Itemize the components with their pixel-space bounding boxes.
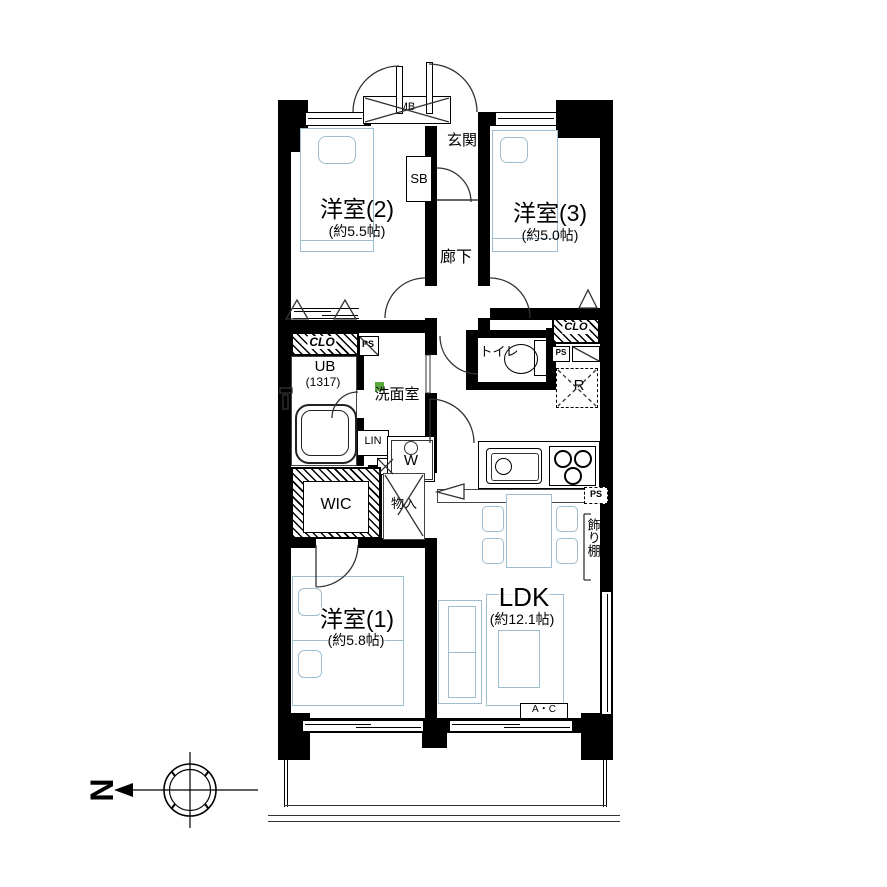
aircon-label: A・C: [532, 705, 556, 716]
stove-burner-2: [574, 450, 592, 468]
window-ldk-balcony: [450, 720, 572, 732]
compass-icon: [114, 752, 258, 828]
entrance-inner-door-arc: [437, 168, 471, 202]
pillow-room3: [500, 137, 528, 163]
wall-below-wic-a: [291, 538, 316, 548]
pipe-space-right-label: PS: [556, 349, 567, 357]
ldk-size: (約12.1帖): [490, 612, 555, 627]
hallway-label: 廊下: [440, 250, 472, 267]
entrance-door-leaf: [426, 62, 433, 114]
room2-door-arc: [385, 278, 425, 318]
wall-toilet-top: [466, 330, 556, 338]
window-room1-balcony: [303, 720, 423, 732]
pillow-room1-a: [298, 588, 322, 616]
room3-name: 洋室(3): [513, 201, 587, 225]
balcony-floor-edge: [284, 805, 607, 809]
compass-north-label: N: [84, 772, 120, 808]
sink-drain: [495, 458, 512, 475]
wall-corridor-right: [478, 126, 490, 286]
stove-burner-1: [554, 450, 572, 468]
wall-corner-bottom-right: [581, 713, 613, 760]
linen-label: LIN: [364, 436, 381, 448]
closet-right-label: CLO: [562, 322, 589, 334]
dining-chair-3: [556, 506, 578, 532]
toilet-bowl: [504, 344, 538, 374]
pillow-room1-b: [298, 650, 322, 678]
bathtub-inner: [301, 410, 349, 456]
window-ldk-right: [601, 592, 612, 714]
shelf-label: 飾り棚: [586, 518, 600, 557]
dining-table: [506, 494, 552, 568]
closet-left-label: CLO: [307, 336, 336, 349]
wall-left: [278, 100, 291, 758]
wall-pier-bottom-middle: [422, 718, 447, 748]
shoe-box-label: SB: [410, 172, 427, 186]
wall-bath-right-a: [356, 352, 364, 390]
entrance-label: 玄関: [447, 133, 477, 149]
wall-corridor-left: [425, 126, 437, 286]
pillow-room2: [318, 136, 356, 164]
closet-sliding-door-room2: [293, 308, 359, 319]
washer-label: W: [404, 453, 418, 469]
wic-label: WIC: [320, 497, 351, 514]
room2-name: 洋室(2): [320, 197, 394, 221]
wall-toilet-left: [466, 330, 478, 390]
wall-washroom-right-a: [425, 333, 437, 355]
dining-chair-1: [482, 506, 504, 532]
pipe-space-kitchen-label: PS: [590, 490, 602, 499]
wall-corner-top-right: [556, 100, 613, 138]
room1-name: 洋室(1): [320, 607, 394, 631]
plan-line-overlay: [0, 0, 887, 887]
dining-chair-2: [482, 538, 504, 564]
stove-burner-3: [564, 467, 582, 485]
washroom-door-leaf: [426, 355, 430, 393]
unit-bath-label: UB: [315, 359, 336, 375]
fridge-label: R: [572, 378, 587, 394]
window-room3-top: [496, 112, 556, 126]
dining-chair-4: [556, 538, 578, 564]
ldk-name: LDK: [499, 584, 550, 611]
room1-size: (約5.8帖): [328, 633, 385, 648]
sofa-cushion-split: [448, 652, 476, 653]
washroom-label: 洗面室: [374, 387, 419, 403]
living-table: [498, 630, 540, 688]
floor-plan: MB SB 玄関 廊下 洋室(2) (約5.5帖) 洋室(3) (約5.0帖) …: [0, 0, 887, 887]
room2-size: (約5.5帖): [329, 224, 386, 239]
meter-box-door-leaf: [396, 66, 403, 114]
window-room2-top: [306, 112, 364, 126]
wall-toilet-bottom: [466, 382, 556, 390]
pipe-space-left-label: PS: [362, 340, 374, 349]
wall-room1-ldk-divider: [425, 538, 437, 718]
storage-label: 物入: [391, 497, 417, 511]
room3-size: (約5.0帖): [522, 228, 579, 243]
unit-bath-size: (1317): [306, 376, 341, 389]
bed-room2-foldline: [300, 240, 374, 241]
balcony-railing: [268, 815, 620, 822]
pipe-space-right-panel: [572, 346, 600, 362]
